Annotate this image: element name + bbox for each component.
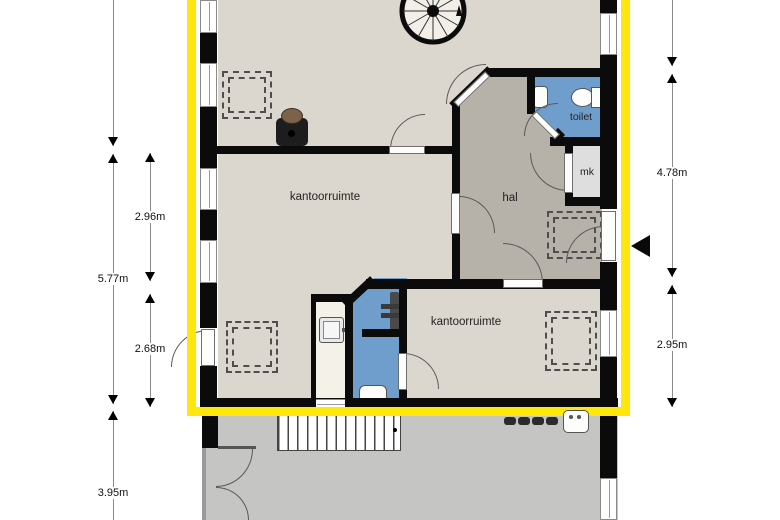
window <box>600 310 617 357</box>
window <box>600 478 617 520</box>
dimension-label: 3.95m <box>95 487 132 499</box>
dimension-arrow <box>667 268 677 277</box>
wall <box>362 329 402 337</box>
window <box>200 168 217 210</box>
dimension-label: 4.78m <box>654 167 691 179</box>
door-leaf <box>398 353 407 390</box>
dimension-arrow <box>667 74 677 83</box>
dimension-arrow <box>108 411 118 420</box>
wall <box>486 68 602 77</box>
wall <box>550 137 602 146</box>
wall <box>565 197 602 206</box>
room-label-meter-closet: mk <box>580 166 594 178</box>
wall <box>200 283 217 328</box>
highlight-outline-right <box>621 0 630 415</box>
dimension-arrow <box>667 285 677 294</box>
wall-outline <box>202 448 206 520</box>
dimension-arrow <box>667 57 677 66</box>
door-leaf <box>503 279 543 288</box>
dimension-arrow <box>145 294 155 303</box>
roof-window-icon <box>545 311 597 371</box>
floor-plan: 5.77m 3.95m 2.96m 2.68m 4.78m 2.95m kant… <box>0 0 780 520</box>
dimension-label: 2.95m <box>654 339 691 351</box>
entrance-arrow-icon <box>631 235 650 257</box>
dimension-arrow <box>108 137 118 146</box>
dimension-arrow <box>145 153 155 162</box>
wall <box>311 294 316 408</box>
wall <box>200 33 217 63</box>
dimension-label: 2.68m <box>132 343 169 355</box>
wall <box>345 299 353 408</box>
utility-sink-icon <box>319 317 344 343</box>
room-label-toilet: toilet <box>570 111 592 123</box>
dimension-label: 2.96m <box>132 211 169 223</box>
entrance-door-leaf <box>601 211 616 261</box>
wood-stove-icon <box>275 108 309 148</box>
dimension-arrow <box>108 154 118 163</box>
door-leaf <box>451 193 460 234</box>
spiral-staircase-icon <box>396 0 470 48</box>
stairs-newel-dot <box>393 428 397 432</box>
dimension-arrow <box>108 395 118 404</box>
kitchen-sink-icon <box>563 410 589 433</box>
window <box>200 0 217 33</box>
roof-window-icon <box>222 71 272 119</box>
wall <box>200 210 217 240</box>
wall <box>600 416 617 478</box>
dimension-arrow <box>667 398 677 407</box>
door-leaf <box>564 153 573 193</box>
cooktop-burners-icon <box>504 412 564 422</box>
window <box>200 63 217 107</box>
room-label-hall: hal <box>502 192 517 204</box>
door-leaf <box>389 146 425 154</box>
wall <box>527 68 535 114</box>
dimension-label: 5.77m <box>95 273 132 285</box>
lower-level-floor <box>202 416 618 520</box>
highlight-outline-left <box>187 0 196 415</box>
room-label-office1: kantoorruimte <box>290 191 360 203</box>
dimension-arrow <box>145 398 155 407</box>
room-label-office2: kantoorruimte <box>431 316 501 328</box>
window <box>200 240 217 283</box>
wall <box>202 416 218 448</box>
straight-stairs-icon <box>277 413 401 451</box>
dimension-line <box>113 411 114 520</box>
wall <box>600 262 617 310</box>
door-leaf <box>201 329 215 366</box>
wall <box>200 107 217 168</box>
wall <box>600 0 617 13</box>
dimension-line <box>113 0 114 146</box>
roof-window-icon <box>226 321 278 373</box>
dimension-arrow <box>145 272 155 281</box>
window <box>600 13 617 55</box>
wall <box>600 55 617 209</box>
